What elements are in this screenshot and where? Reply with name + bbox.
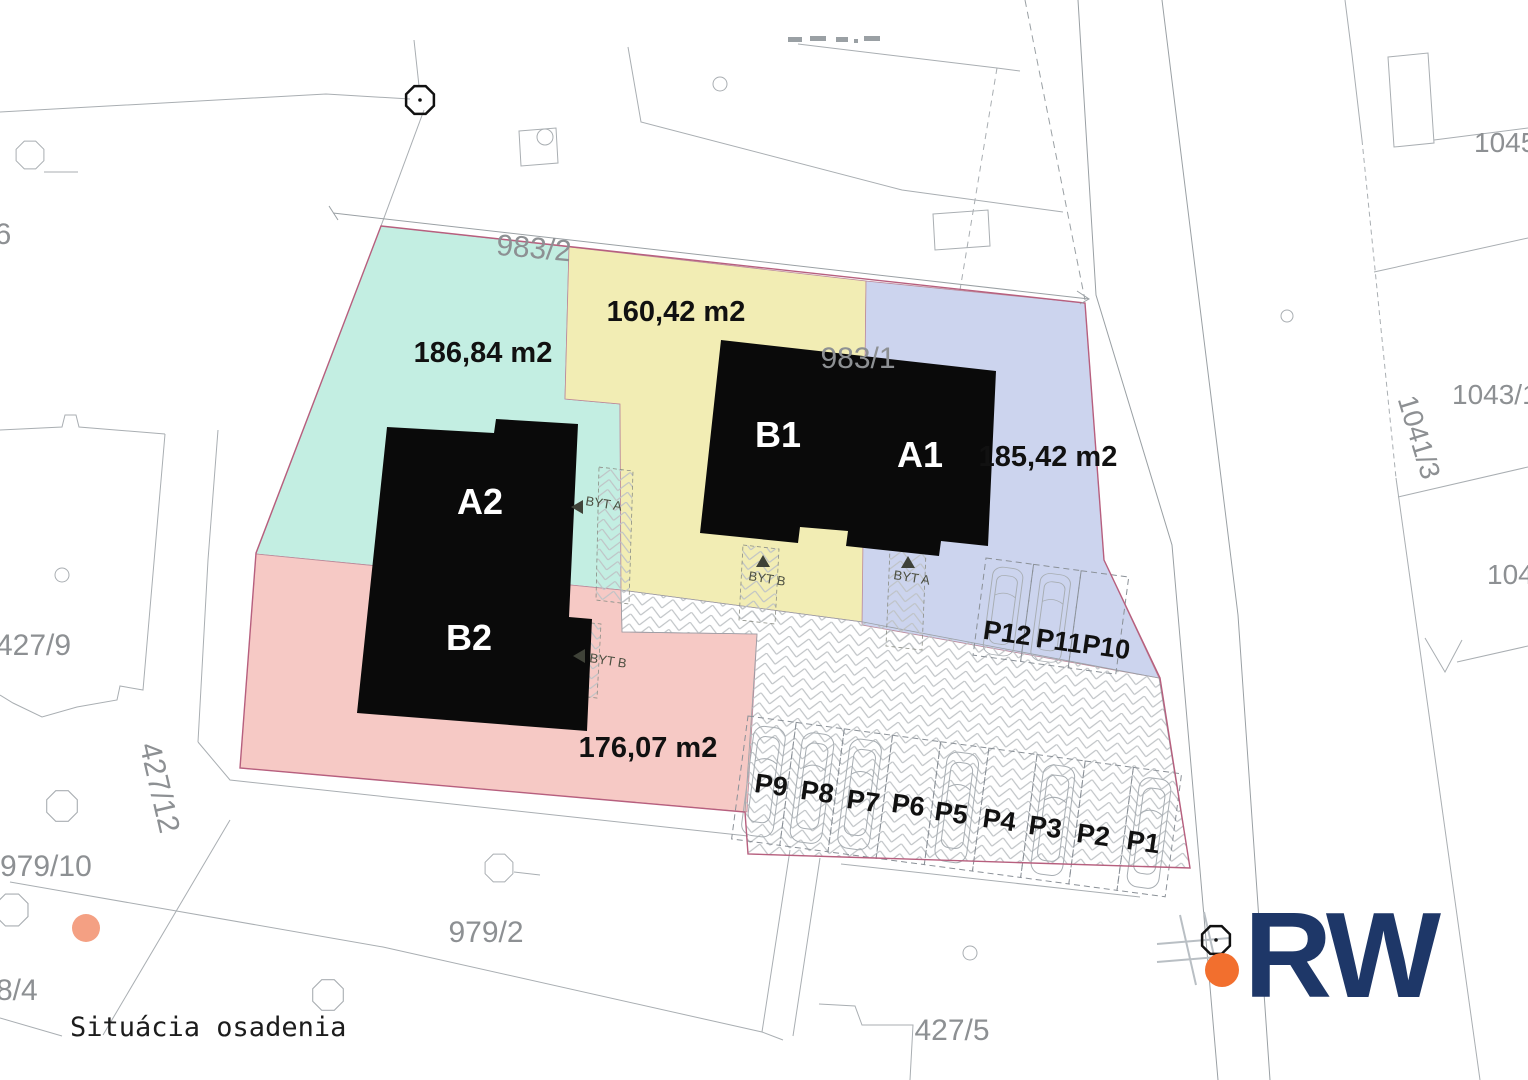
clipped-top-label (788, 36, 880, 43)
parking-label-p3: P3 (1027, 810, 1064, 844)
parking-label-p6: P6 (890, 788, 927, 822)
parcel-979-10: 979/10 (0, 850, 92, 883)
area-label-teal: 186,84 m2 (414, 337, 553, 369)
parcel-104: 104 (1487, 559, 1528, 590)
parcel-8-4: 8/4 (0, 974, 38, 1007)
parcel-427-5: 427/5 (914, 1014, 989, 1047)
drawing-title: Situácia osadenia (70, 1012, 346, 1043)
parcel-1045: 1045 (1474, 127, 1528, 158)
parcel-983-2: 983/2 (495, 229, 573, 268)
building-label-a1: A1 (897, 434, 943, 475)
tree-octagon-icon (16, 141, 44, 169)
parking-label-p8: P8 (799, 775, 836, 809)
parking-label-p4: P4 (981, 803, 1018, 837)
building-label-b2: B2 (446, 617, 492, 658)
building-label-b1: B1 (755, 414, 801, 455)
survey-point (406, 86, 434, 114)
site-plan-canvas: A2 B2 B1 A1 186,84 m2 160,42 m2 185,42 m… (0, 0, 1528, 1080)
building-label-a2: A2 (457, 481, 503, 522)
parking-label-p9: P9 (753, 768, 790, 802)
tree-octagon-icon (485, 854, 513, 882)
parking-label-p7: P7 (845, 784, 882, 818)
parcel-427-12: 427/12 (133, 739, 186, 836)
parcel-96: 96 (0, 218, 11, 251)
building-a2-b2 (357, 419, 592, 731)
parcel-983-1: 983/1 (820, 342, 895, 375)
area-label-pink: 176,07 m2 (579, 732, 718, 764)
parking-label-p1: P1 (1125, 825, 1162, 859)
tree-octagon-icon (47, 791, 78, 822)
parking-label-p5: P5 (933, 796, 970, 830)
parking-label-p11: P11 (1034, 623, 1084, 659)
logo-orange-dot (1205, 953, 1239, 987)
logo-text: RW (1244, 887, 1442, 1023)
rw-logo: RW (1202, 887, 1442, 1023)
parcel-979-2: 979/2 (448, 916, 523, 949)
tree-dot (72, 914, 100, 942)
tree-octagon-icon (313, 980, 344, 1011)
area-label-blue: 185,42 m2 (979, 441, 1118, 473)
parcel-427-9: 427/9 (0, 629, 71, 662)
parcel-1043-1: 1043/1 (1452, 379, 1528, 410)
area-label-yellow: 160,42 m2 (607, 296, 746, 328)
tree-octagon-icon (0, 894, 28, 926)
parcel-1041-3: 1041/3 (1392, 392, 1447, 483)
parking-label-p2: P2 (1075, 818, 1112, 852)
